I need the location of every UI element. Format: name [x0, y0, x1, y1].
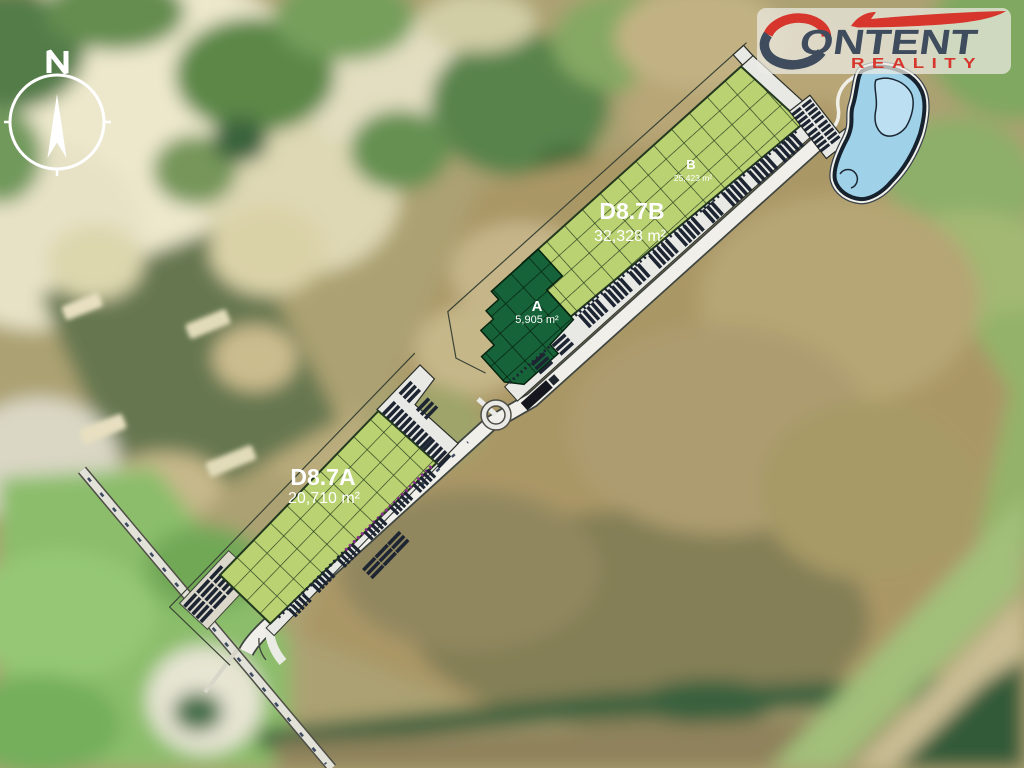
svg-text:25,423 m²: 25,423 m² — [674, 173, 712, 183]
svg-text:32,328 m²: 32,328 m² — [594, 228, 667, 245]
svg-text:B: B — [686, 157, 695, 172]
svg-text:A: A — [532, 298, 543, 315]
svg-text:20,710 m²: 20,710 m² — [288, 490, 361, 507]
svg-text:D8.7B: D8.7B — [599, 198, 664, 224]
svg-text:D8.7A: D8.7A — [290, 464, 355, 490]
svg-text:REALITY: REALITY — [851, 55, 983, 72]
svg-text:5,905 m²: 5,905 m² — [515, 314, 559, 326]
